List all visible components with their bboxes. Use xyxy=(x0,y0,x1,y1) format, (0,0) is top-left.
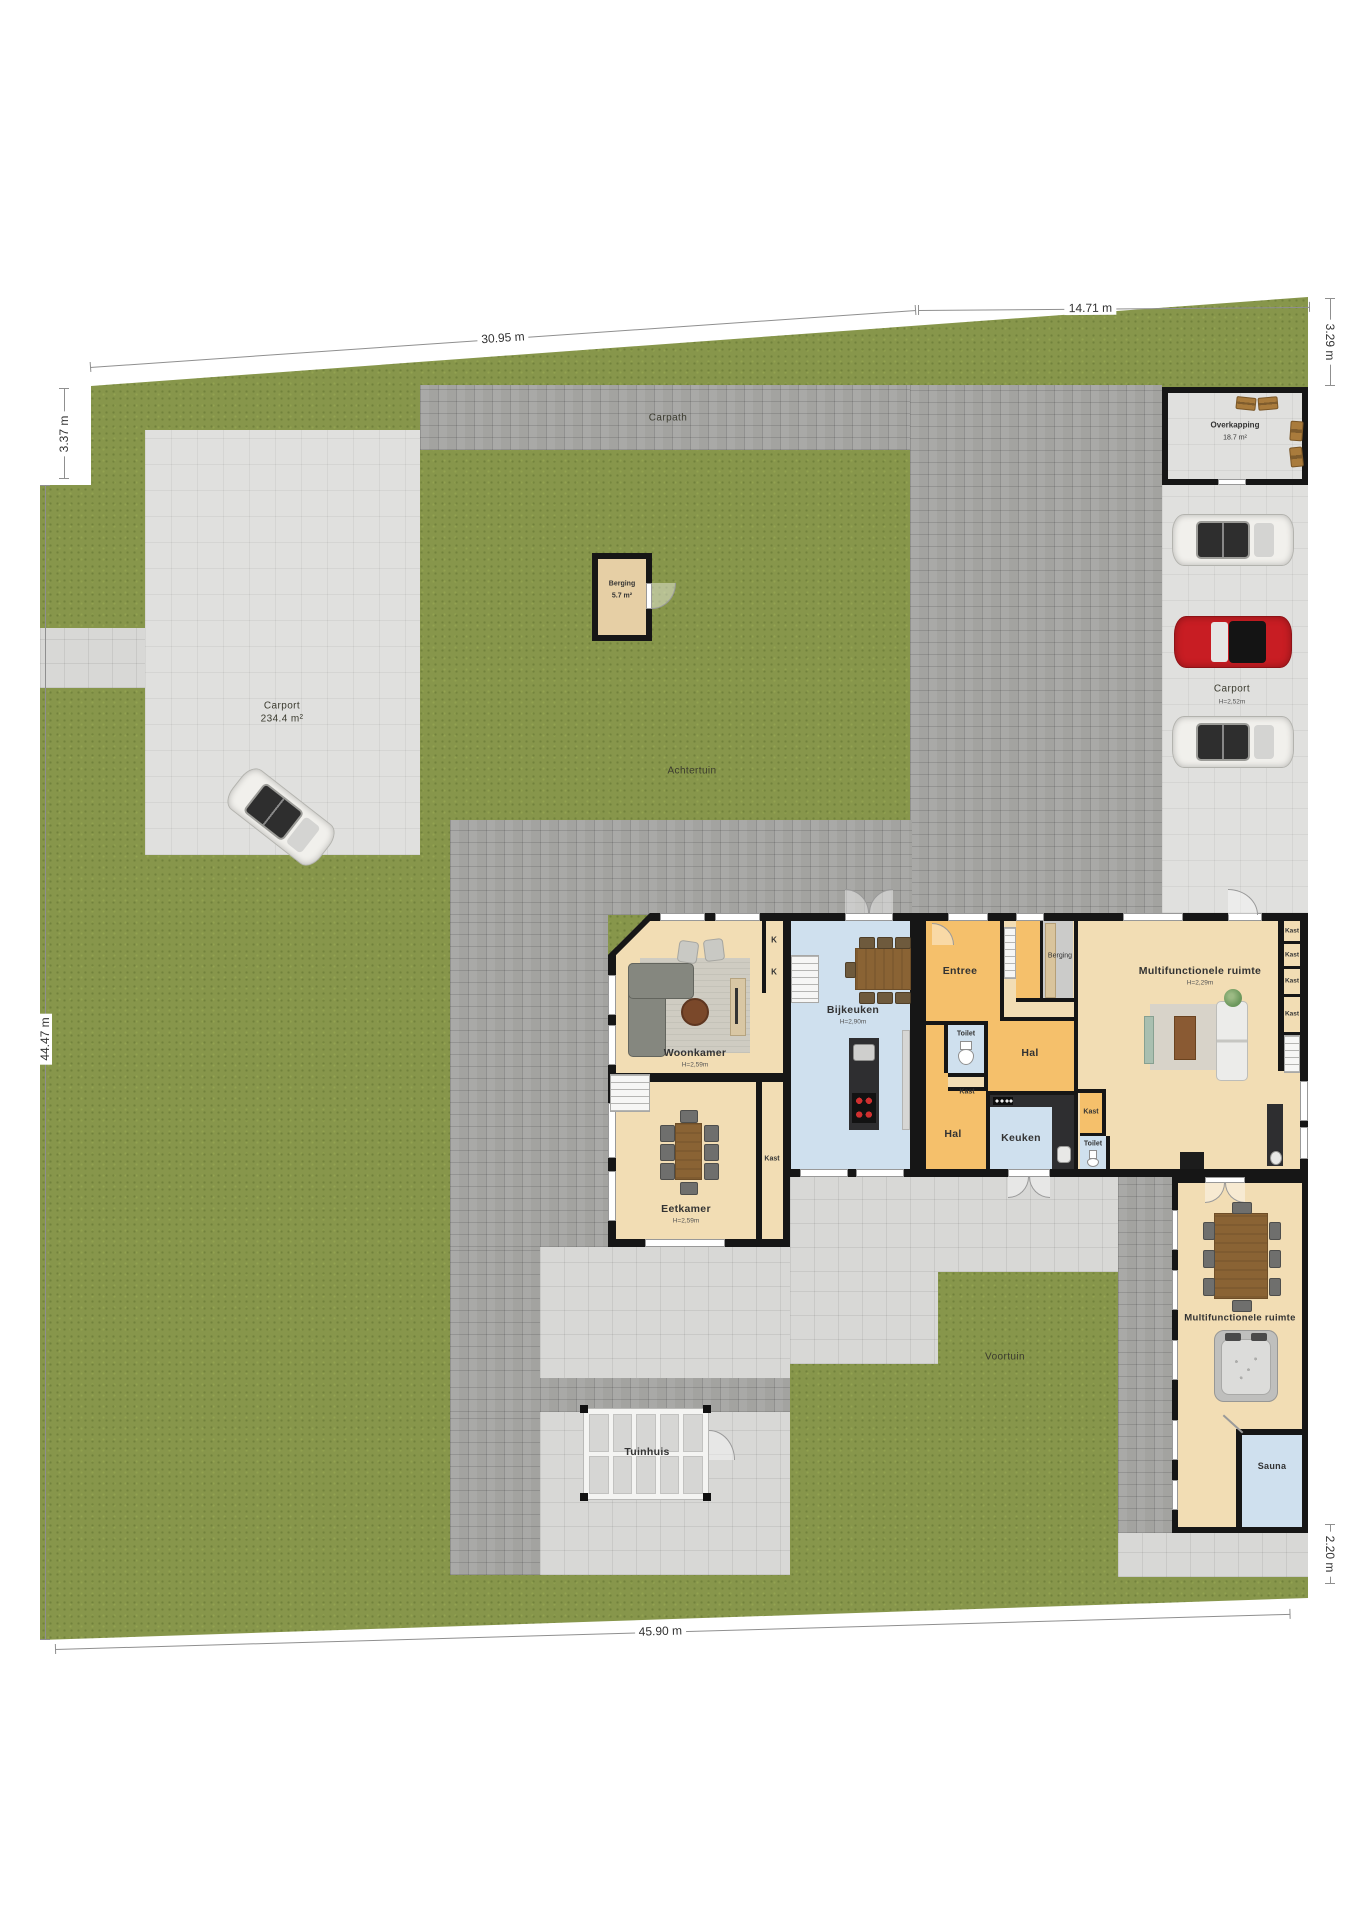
kast-label: Kast xyxy=(1285,978,1299,985)
hal-label: Hal xyxy=(944,1128,961,1140)
chair xyxy=(859,992,875,1004)
window xyxy=(1172,1480,1178,1510)
car-white-1 xyxy=(1172,514,1294,566)
overkapping-wall-bottom xyxy=(1162,479,1218,485)
coffee-table xyxy=(1174,1016,1196,1060)
tuinhuis-corner xyxy=(703,1405,711,1413)
eetkamer-label: Eetkamer xyxy=(661,1203,711,1215)
chair xyxy=(660,1163,675,1180)
fireplace xyxy=(1180,1152,1204,1169)
sauna-floor xyxy=(1242,1435,1302,1527)
window xyxy=(645,1239,725,1247)
carpath-label: Carpath xyxy=(649,413,687,424)
dining-table xyxy=(675,1123,702,1180)
window xyxy=(800,1169,848,1177)
hot-tub-headrest xyxy=(1225,1333,1241,1341)
window xyxy=(1172,1270,1178,1310)
wall xyxy=(1102,1089,1106,1137)
dim-label: 3.37 m xyxy=(57,411,71,456)
tuinhuis-panel xyxy=(683,1456,703,1494)
chair xyxy=(1232,1300,1252,1312)
tuinhuis-panel xyxy=(683,1414,703,1452)
tuinhuis-label: Tuinhuis xyxy=(624,1446,669,1458)
paving-left-strip xyxy=(40,628,145,688)
sink xyxy=(1057,1146,1071,1163)
tuinhuis-panel xyxy=(589,1456,609,1494)
toilet-label: Toilet xyxy=(957,1031,975,1038)
chair xyxy=(1269,1250,1281,1268)
wall xyxy=(944,1025,948,1073)
sauna-label: Sauna xyxy=(1258,1461,1287,1471)
chair xyxy=(1269,1278,1281,1296)
window xyxy=(948,913,988,921)
car-windshield xyxy=(1211,622,1229,662)
tuinhuis-corner xyxy=(703,1493,711,1501)
bijkeuken-label: Bijkeuken xyxy=(827,1004,879,1016)
berging-shed-label: Berging xyxy=(609,581,635,588)
stairs xyxy=(610,1074,650,1112)
toilet-icon xyxy=(958,1041,974,1065)
paving-front-tongue xyxy=(790,1272,938,1364)
paving-driveway-right xyxy=(910,385,1162,955)
counter xyxy=(902,1030,910,1130)
berging-shed-area: 5.7 m² xyxy=(612,593,632,600)
paving-west-of-wing xyxy=(450,915,608,1247)
chair xyxy=(704,1163,719,1180)
house-left-wing: K K Woonkamer H=2,59m Eetkamer H=2,59m xyxy=(608,913,790,1247)
car-white-2 xyxy=(1172,716,1294,768)
toilet-icon xyxy=(1087,1150,1099,1167)
woonkamer-height: H=2,59m xyxy=(682,1062,709,1069)
overkapping-wall-right xyxy=(1302,387,1308,485)
bench-icon xyxy=(1289,446,1304,467)
chair xyxy=(1269,1222,1281,1240)
hal-label: Hal xyxy=(1021,1047,1038,1059)
paving-below-house xyxy=(790,1177,1118,1272)
bench-icon xyxy=(1235,396,1256,411)
bench-icon xyxy=(1257,396,1278,411)
chair xyxy=(859,937,875,949)
kast-label: Kast xyxy=(1285,1011,1299,1018)
berging-shed: Berging 5.7 m² xyxy=(592,553,652,641)
keuken-label: Keuken xyxy=(1001,1132,1041,1144)
dim-label: 44.47 m xyxy=(38,1014,52,1065)
k-closet-label: K xyxy=(771,968,777,977)
chair xyxy=(704,1144,719,1161)
kast-label: Kast xyxy=(764,1156,779,1163)
bench xyxy=(1144,1016,1154,1064)
overkapping-gate xyxy=(1218,479,1246,485)
eetkamer-height: H=2,59m xyxy=(673,1218,700,1225)
window xyxy=(715,913,760,921)
window xyxy=(608,1171,616,1221)
paving-wing-west-column xyxy=(1118,1177,1172,1533)
chair xyxy=(680,1182,698,1195)
achtertuin-label: Achtertuin xyxy=(667,766,716,777)
window xyxy=(608,975,616,1015)
sofa xyxy=(628,963,694,999)
window xyxy=(1123,913,1183,921)
kast-label: Kast xyxy=(1285,928,1299,935)
overkapping-area: 18.7 m² xyxy=(1223,435,1247,442)
chair xyxy=(845,962,856,978)
k-closet-label: K xyxy=(771,936,777,945)
dim-label: 14.71 m xyxy=(1065,301,1116,315)
car-red xyxy=(1174,616,1292,668)
wall xyxy=(1004,1017,1078,1021)
woonkamer-label: Woonkamer xyxy=(664,1047,727,1059)
chair xyxy=(895,937,911,949)
overkapping-wall-left xyxy=(1162,387,1168,485)
dim-label: 3.29 m xyxy=(1323,320,1337,365)
overkapping-wall-bottom xyxy=(1246,479,1308,485)
car-windshield xyxy=(1254,523,1275,557)
tuinhuis-panel xyxy=(636,1456,656,1494)
door-gap xyxy=(1008,1169,1050,1177)
chair xyxy=(877,937,893,949)
plant xyxy=(1224,989,1242,1007)
window xyxy=(1172,1210,1178,1250)
chair xyxy=(877,992,893,1004)
cooktop xyxy=(852,1093,876,1123)
voortuin-label: Voortuin xyxy=(985,1352,1025,1363)
car-roof xyxy=(1229,621,1266,663)
coffee-table xyxy=(681,998,709,1026)
tv xyxy=(735,988,738,1024)
tuinhuis-corner xyxy=(580,1493,588,1501)
window xyxy=(1300,1127,1308,1159)
carport-right-height: H=2,52m xyxy=(1219,699,1246,706)
stairs xyxy=(791,955,819,1003)
window xyxy=(1172,1340,1178,1380)
window xyxy=(1016,913,1044,921)
dim-label: 30.95 m xyxy=(477,329,529,347)
kast-label: Kast xyxy=(1083,1109,1098,1116)
shelf xyxy=(1045,923,1056,998)
dining-table xyxy=(1214,1213,1268,1299)
door-gap xyxy=(845,913,893,921)
chair xyxy=(660,1144,675,1161)
carport-right-label: Carport xyxy=(1214,684,1250,695)
sofa xyxy=(1216,1001,1248,1081)
toilet-bowl xyxy=(958,1049,974,1065)
carport-left-label: Carport xyxy=(264,701,300,712)
car-roof xyxy=(1196,521,1250,559)
car-roof xyxy=(1196,723,1250,761)
bijkeuken-height: H=2,90m xyxy=(840,1019,867,1026)
kast-label: Kast xyxy=(1285,952,1299,959)
window xyxy=(1172,1420,1178,1460)
chair xyxy=(895,992,911,1004)
house-wing: Multifunctionele ruimte Sauna xyxy=(1172,1177,1308,1533)
dim-right-lower: 2.20 m xyxy=(1330,1524,1331,1584)
dim-right-upper: 3.29 m xyxy=(1330,298,1331,386)
paving-south-band xyxy=(450,1378,790,1412)
chair xyxy=(704,1125,719,1142)
window xyxy=(660,913,705,921)
paving-above-house xyxy=(450,820,912,915)
tuinhuis-panel xyxy=(589,1414,609,1452)
kast-label: Kast xyxy=(959,1089,974,1096)
window xyxy=(856,1169,904,1177)
tuinhuis-corner xyxy=(580,1405,588,1413)
stairs xyxy=(1284,1035,1300,1073)
toilet-label: Toilet xyxy=(1084,1141,1102,1148)
multifunctioneel-height: H=2,29m xyxy=(1187,980,1214,987)
house-main-block: Entree Berging Toilet Kast Hal Hal xyxy=(918,913,1308,1177)
toilet-bowl xyxy=(1087,1158,1099,1167)
site-floorplan: Carpath Carport 234.4 m² Achtertuin Voor… xyxy=(0,0,1358,1920)
hot-tub xyxy=(1214,1330,1278,1402)
dim-label: 45.90 m xyxy=(634,1623,686,1638)
sink xyxy=(1270,1151,1282,1165)
overkapping-wall-top xyxy=(1162,387,1308,393)
paving-below-wing xyxy=(1118,1533,1308,1577)
chair xyxy=(1203,1222,1215,1240)
chair xyxy=(660,1125,675,1142)
hot-tub-basin xyxy=(1221,1339,1271,1395)
hot-tub-headrest xyxy=(1251,1333,1267,1341)
window xyxy=(1300,1081,1308,1121)
dim-left-main: 44.47 m xyxy=(45,485,46,1640)
house-bijkeuken: Bijkeuken H=2,90m xyxy=(783,913,918,1177)
lounge-chair xyxy=(703,938,726,962)
tuinhuis-panel xyxy=(660,1456,680,1494)
lounge-chair xyxy=(677,940,700,965)
car-windshield xyxy=(1254,725,1275,759)
bench-icon xyxy=(1289,421,1303,442)
sideboard xyxy=(730,978,746,1036)
wall xyxy=(1106,1136,1110,1169)
wing-multifunctioneel-label: Multifunctionele ruimte xyxy=(1184,1313,1295,1324)
chair xyxy=(1203,1250,1215,1268)
stairs xyxy=(1004,927,1016,979)
window xyxy=(608,1025,616,1065)
overkapping: Overkapping 18.7 m² xyxy=(1162,387,1308,485)
cooktop xyxy=(993,1097,1013,1105)
wall xyxy=(1016,998,1076,1002)
overkapping-label: Overkapping xyxy=(1211,421,1260,430)
chair xyxy=(1232,1202,1252,1214)
dim-left-upper: 3.37 m xyxy=(64,388,65,479)
tuinhuis-panel xyxy=(613,1456,633,1494)
chair xyxy=(680,1110,698,1123)
dining-table xyxy=(855,948,911,990)
entree-label: Entree xyxy=(943,965,977,977)
berging-label: Berging xyxy=(1048,953,1072,960)
multifunctioneel-label: Multifunctionele ruimte xyxy=(1139,965,1261,977)
chair xyxy=(1203,1278,1215,1296)
sink xyxy=(853,1044,875,1061)
dim-label: 2.20 m xyxy=(1323,1532,1337,1577)
carport-left-area: 234.4 m² xyxy=(261,714,304,725)
